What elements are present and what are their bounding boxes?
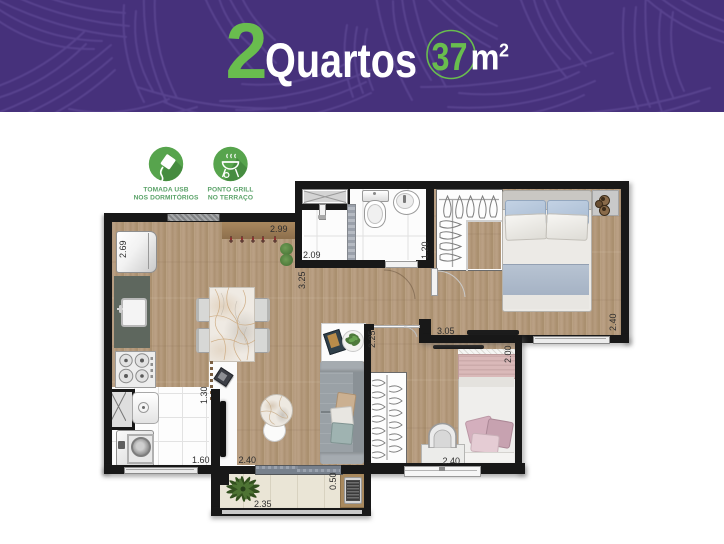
svg-text:2: 2 — [499, 40, 509, 61]
svg-text:Quartos: Quartos — [265, 35, 417, 88]
svg-text:m: m — [471, 36, 500, 77]
svg-text:37: 37 — [432, 36, 468, 79]
svg-text:2: 2 — [226, 6, 268, 95]
svg-text:NO TERRAÇO: NO TERRAÇO — [208, 195, 253, 202]
svg-text:NOS DORMITÓRIOS: NOS DORMITÓRIOS — [134, 193, 199, 202]
svg-text:TOMADA USB: TOMADA USB — [143, 187, 188, 194]
svg-text:PONTO GRILL: PONTO GRILL — [207, 187, 253, 194]
